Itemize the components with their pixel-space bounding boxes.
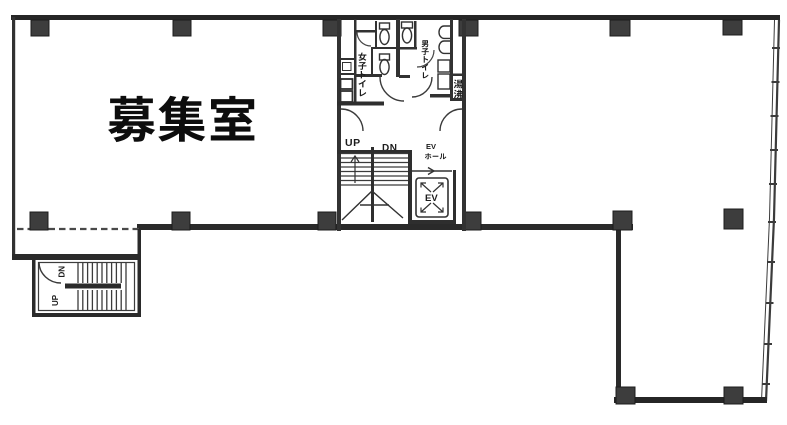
svg-text:DN: DN <box>58 266 67 278</box>
svg-text:EV: EV <box>426 142 436 151</box>
svg-text:UP: UP <box>51 294 60 306</box>
svg-text:UP: UP <box>345 137 361 149</box>
svg-text:EV: EV <box>425 193 438 204</box>
